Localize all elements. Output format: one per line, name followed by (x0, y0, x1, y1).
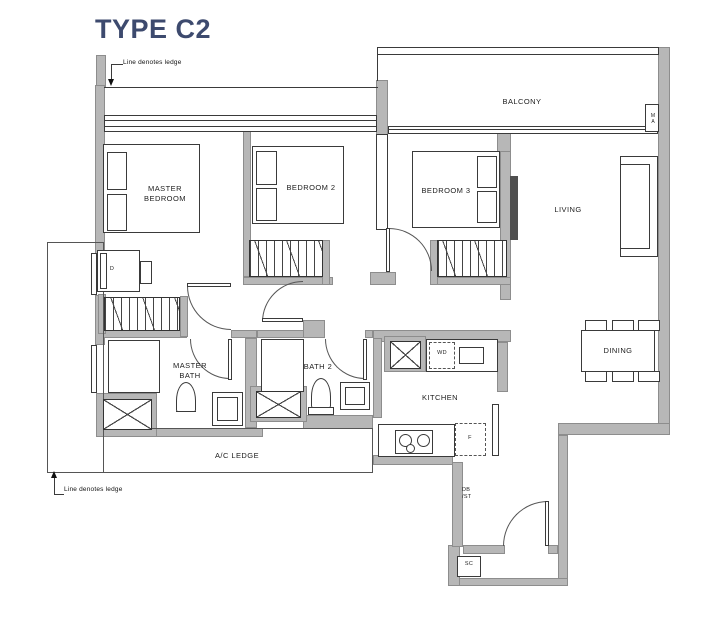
stool (140, 261, 152, 284)
arrow-down-icon (108, 79, 114, 86)
arrow-up-icon (51, 471, 57, 478)
ac-unit (390, 341, 421, 369)
marker-washer-dryer: WD (429, 350, 455, 357)
balcony-sliding-door (388, 126, 658, 134)
dining-chair (638, 320, 660, 331)
room-label-bath-2: BATH 2 (288, 362, 348, 372)
wall-segment (96, 55, 106, 87)
wall-segment (658, 47, 670, 427)
hob-burner (406, 444, 415, 453)
pillow (477, 191, 497, 223)
room-label-balcony: BALCONY (492, 97, 552, 107)
door-arc-bedroom2 (262, 281, 303, 322)
dining-chair (612, 320, 634, 331)
door-arc-bath2 (325, 339, 365, 379)
balcony-edge-line (377, 55, 378, 81)
pillow (256, 151, 277, 185)
window-line (388, 129, 658, 130)
door-leaf (386, 228, 390, 272)
balcony-parapet (377, 47, 659, 55)
toilet (176, 382, 196, 412)
toilet-base (176, 411, 196, 412)
leader-line (111, 64, 112, 80)
wall-segment (558, 423, 670, 435)
pillow (107, 194, 127, 231)
wall-segment (463, 545, 505, 554)
vanity-basin (345, 387, 365, 405)
wall-segment (322, 240, 330, 285)
wall-segment (373, 338, 382, 418)
wall-segment (180, 296, 188, 337)
wall-segment (450, 578, 568, 586)
door-arc-bedroom3 (389, 228, 432, 271)
wardrobe (437, 240, 507, 277)
kitchen-door (492, 404, 499, 456)
window-band (104, 115, 377, 132)
wall-segment (231, 330, 257, 338)
marker-shoe-cabinet: SC (457, 561, 481, 568)
marker-balcony-tag: MA (648, 108, 656, 130)
room-label-bedroom-2: BEDROOM 2 (281, 183, 341, 193)
room-label-bedroom-3: BEDROOM 3 (416, 186, 476, 196)
door-leaf (363, 339, 367, 380)
ledge-note-top: Line denotes ledge (123, 59, 182, 66)
marker-fridge: F (463, 435, 477, 442)
pillow (477, 156, 497, 188)
room-label-master-bedroom: MASTER BEDROOM (135, 184, 195, 204)
room-label-master-bath: MASTER BATH (160, 361, 220, 381)
pillow (256, 188, 277, 221)
dining-chair (612, 371, 634, 382)
door-leaf (545, 501, 549, 546)
wall-segment (103, 330, 187, 338)
wall-segment (370, 272, 396, 285)
leader-line (54, 477, 55, 495)
hob-burner (417, 434, 430, 447)
window-line (104, 126, 377, 127)
marker-dresser: D (105, 266, 119, 273)
door-leaf (228, 339, 232, 380)
window-line (104, 120, 377, 121)
leader-line (111, 64, 123, 65)
wall-segment (303, 415, 373, 429)
dining-chair (585, 320, 607, 331)
wall-segment (303, 320, 325, 338)
room-label-kitchen: KITCHEN (410, 393, 470, 403)
wall-segment (497, 342, 508, 392)
door-arc-entry (503, 501, 548, 546)
toilet-base (308, 407, 334, 415)
dining-chair (585, 371, 607, 382)
vanity-basin (217, 397, 238, 421)
kitchen-sink (459, 347, 484, 364)
floor-plan: TYPE C2 Line denotes ledge Line denotes … (0, 0, 719, 618)
toilet (311, 378, 331, 408)
wall-segment (558, 435, 568, 582)
marker-db-st: DB /ST (462, 487, 484, 502)
pillow (107, 152, 127, 190)
ac-unit (256, 391, 301, 418)
door-leaf (187, 283, 231, 287)
ledge-note-bottom: Line denotes ledge (64, 486, 123, 493)
ledge-line (104, 87, 378, 88)
wardrobe (104, 297, 180, 331)
wall-segment (452, 462, 463, 547)
wall-segment (365, 330, 373, 338)
window (91, 345, 97, 393)
dining-chair (638, 371, 660, 382)
leader-line (54, 494, 64, 495)
tv-console (510, 176, 518, 240)
room-label-dining: DINING (588, 346, 648, 356)
sofa-seat (620, 164, 650, 249)
wall-segment (548, 545, 558, 554)
wall-segment (376, 80, 388, 137)
room-label-ac-ledge: A/C LEDGE (197, 451, 277, 461)
wall-segment (430, 277, 511, 285)
room-label-living: LIVING (538, 205, 598, 215)
ac-unit (103, 399, 152, 430)
door-arc-master-bedroom (187, 286, 231, 330)
shower (108, 340, 160, 393)
wardrobe (249, 240, 323, 277)
partition-wall (376, 134, 388, 230)
door-leaf (262, 318, 303, 322)
plan-title: TYPE C2 (95, 14, 211, 45)
